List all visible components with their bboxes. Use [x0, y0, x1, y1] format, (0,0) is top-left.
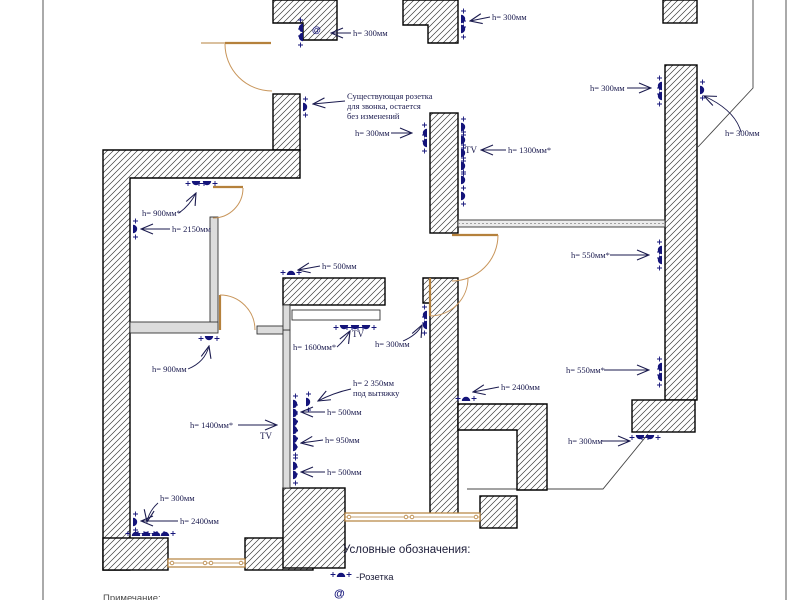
annotation-arrow: [704, 96, 741, 132]
floor-plan-drawing: @ h= 300мм h= 300мм h= 300мм h= 300мм h=…: [0, 0, 800, 600]
height-annotation: h= 300мм: [590, 83, 625, 93]
existing-outlet-note: для звонка, остается: [347, 101, 421, 111]
height-annotation: h= 300мм: [375, 339, 410, 349]
floor-plan-page: @ h= 300мм h= 300мм h= 300мм h= 300мм h=…: [0, 0, 800, 600]
at-icon: @: [312, 25, 321, 35]
balcony-line-bottom: [467, 434, 648, 489]
height-annotation: h= 1400мм*: [190, 420, 233, 430]
door-arc: [225, 44, 272, 91]
outlet-icon: [461, 186, 466, 207]
legend: Условные обозначения: -Розетка @: [331, 544, 471, 600]
outlet-icon: [331, 572, 352, 577]
window-joint: [347, 515, 351, 519]
height-annotation: h= 300мм: [492, 12, 527, 22]
counter-shelf: [292, 310, 380, 320]
height-annotation: h= 550мм*: [571, 250, 610, 260]
legend-title: Условные обозначения:: [343, 544, 470, 556]
wall-segment: [632, 400, 695, 432]
wall-segment: [430, 113, 458, 233]
height-annotation: h= 300мм: [355, 128, 390, 138]
height-annotation: h= 500мм: [327, 467, 362, 477]
legend-socket-label: -Розетка: [356, 572, 394, 583]
footer-note-label: Примечание:: [103, 593, 161, 600]
height-annotation: h= 950мм: [325, 435, 360, 445]
height-annotation: h= 2400мм: [501, 382, 541, 392]
wall-segment: [283, 488, 345, 568]
height-annotation: h= 2400мм: [180, 516, 220, 526]
annotation-arrow: [179, 193, 196, 213]
outlet-icon: [306, 392, 311, 413]
window-joint: [404, 515, 408, 519]
wall-segment: [103, 538, 168, 570]
wall-segment: [273, 94, 300, 150]
partition: [130, 322, 218, 333]
height-annotation: h= 300мм: [160, 493, 195, 503]
door-arc: [213, 188, 243, 218]
door-arc: [452, 235, 498, 281]
height-annotation: h= 2 350мм: [353, 378, 395, 388]
outlet-icon: [133, 512, 138, 533]
height-annotation: h= 1300мм*: [508, 145, 551, 155]
door-arc: [220, 295, 255, 330]
outlet-icon: [199, 336, 220, 341]
partition: [283, 305, 290, 330]
outlet-icon: [303, 97, 308, 118]
window-joint: [239, 561, 243, 565]
annotation-arrow: [188, 346, 209, 369]
partition: [210, 217, 218, 330]
height-annotation: под вытяжку: [353, 388, 400, 398]
tv-label: TV: [260, 431, 272, 441]
annotation-arrow: [298, 266, 320, 270]
tv-label: TV: [352, 329, 364, 339]
height-annotation: h= 500мм: [322, 261, 357, 271]
wall-segment: [480, 496, 517, 528]
height-annotation: h= 2150мм: [172, 224, 212, 234]
note-leader-arrow: [313, 101, 345, 104]
height-annotation: h= 900мм: [152, 364, 187, 374]
outlet-icon: [133, 219, 138, 240]
height-annotation: h= 300мм: [725, 128, 760, 138]
annotation-arrow: [147, 503, 158, 522]
window-joint: [170, 561, 174, 565]
wall-segment: [283, 278, 385, 305]
existing-outlet-note: Существующая розетка: [347, 91, 433, 101]
height-annotation: h= 500мм: [327, 407, 362, 417]
existing-outlet-note: без изменений: [347, 111, 400, 121]
height-annotation: h= 1600мм*: [293, 342, 336, 352]
annotation-arrow: [337, 331, 350, 347]
at-icon: @: [334, 588, 345, 600]
wall-segment: [458, 404, 547, 490]
annotation-arrow: [473, 387, 499, 392]
wall-segment: [663, 0, 697, 23]
balcony-line-top-right: [698, 0, 753, 147]
wall-segment: [665, 65, 697, 400]
outlet-icon: [281, 270, 302, 275]
height-annotation: h= 900мм*: [142, 208, 181, 218]
height-annotation: h= 300мм: [568, 436, 603, 446]
wall-segment: [403, 0, 458, 43]
window-joint: [203, 561, 207, 565]
partition: [257, 326, 283, 334]
window-joint: [474, 515, 478, 519]
outlet-icon: [700, 80, 705, 101]
height-annotation: h= 300мм: [353, 28, 388, 38]
window-joint: [410, 515, 414, 519]
partition: [283, 330, 290, 488]
height-annotation: h= 550мм*: [566, 365, 605, 375]
annotation-arrow: [470, 17, 490, 21]
annotation-arrow: [301, 440, 323, 443]
partition: [458, 220, 665, 227]
window-joint: [209, 561, 213, 565]
tv-label: TV: [465, 145, 477, 155]
wall-segment: [273, 0, 337, 40]
annotation-arrow: [318, 389, 351, 401]
